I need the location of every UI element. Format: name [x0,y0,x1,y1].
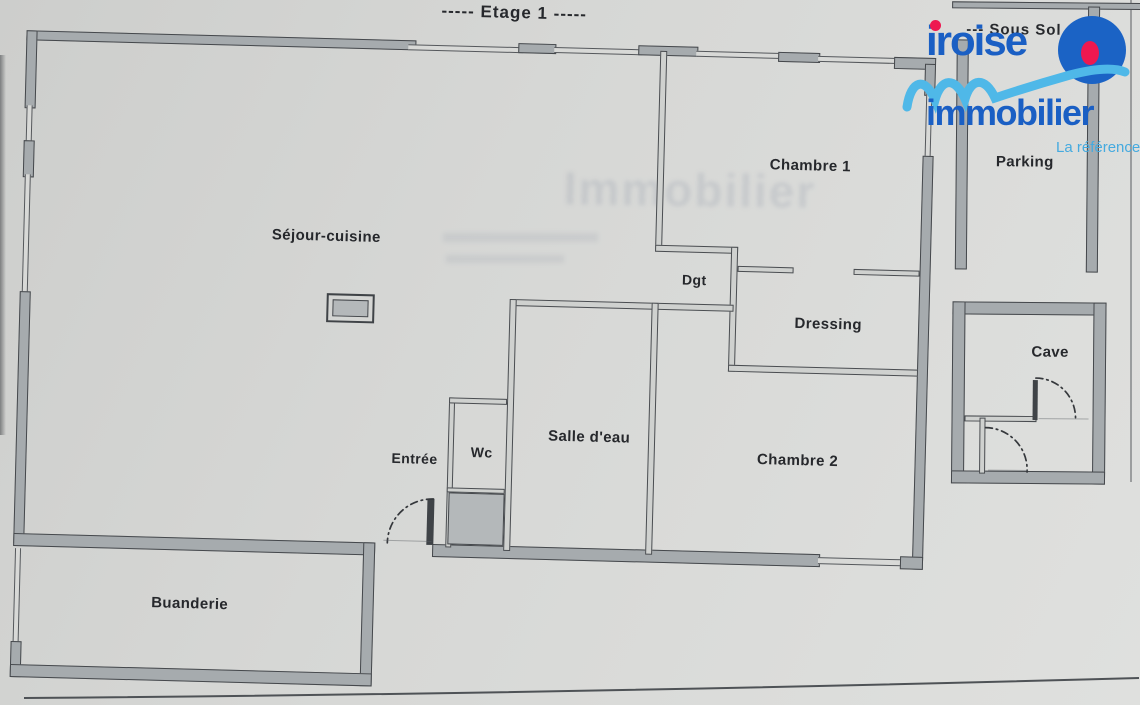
logo-brand-bottom: immobilier [926,92,1093,134]
floor-plan-scan: Immobilier ----- Etage 1 ----- [0,0,1140,705]
logo-brand-top: iroise [926,17,1026,65]
logo-red-dot-icon [930,20,941,31]
logo-tagline: La référence [1056,139,1140,156]
